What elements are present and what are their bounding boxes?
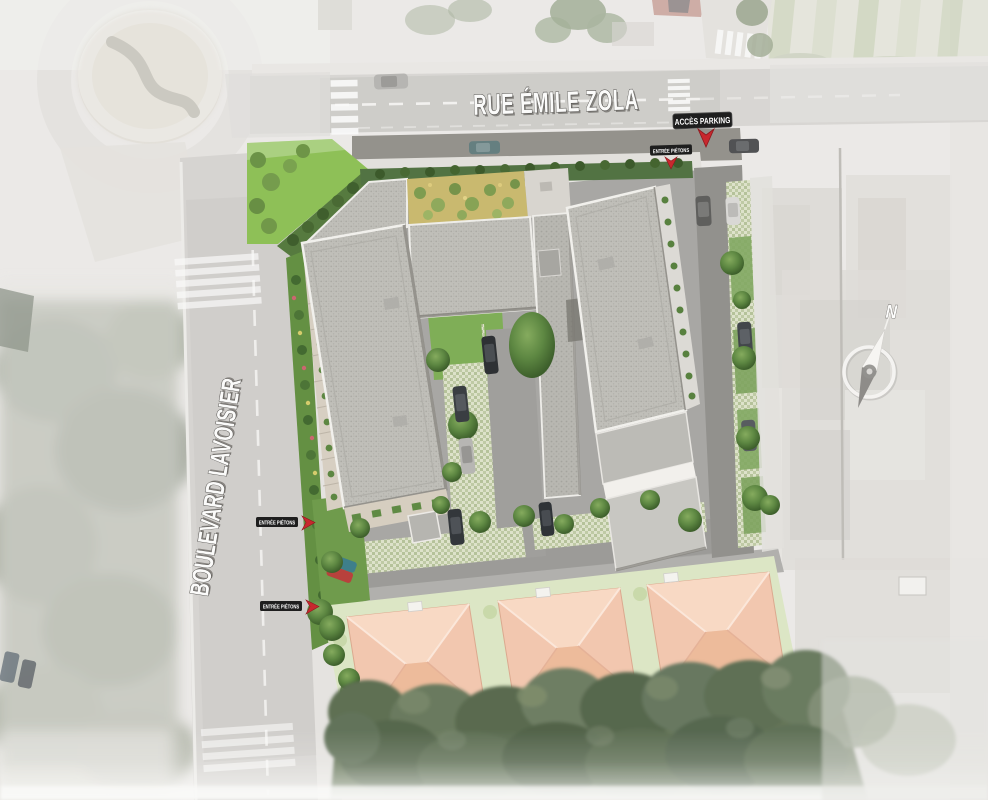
svg-text:ACCÈS PARKING: ACCÈS PARKING [674,115,730,127]
svg-text:N: N [885,300,898,322]
svg-text:RUE ÉMILE ZOLA: RUE ÉMILE ZOLA [473,83,640,122]
